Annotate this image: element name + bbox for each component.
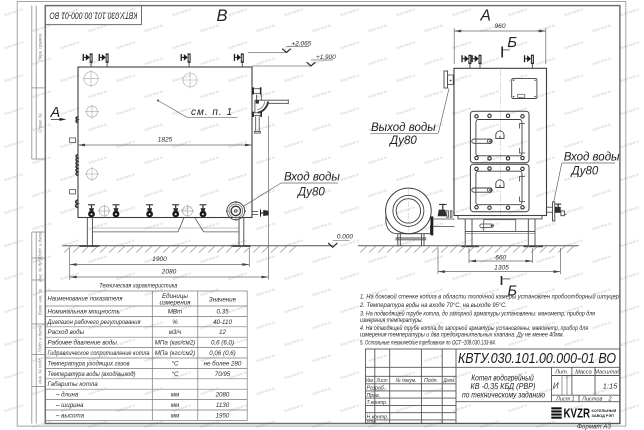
svg-text:ЗАВОД РЭП: ЗАВОД РЭП [592,414,615,418]
svg-text:1900: 1900 [152,256,167,263]
svg-text:Вход воды: Вход воды [284,172,340,184]
svg-text:А: А [480,7,491,24]
svg-text:Габариты котла: Габариты котла [48,381,99,388]
svg-text:Наименование показателя: Наименование показателя [48,296,124,303]
svg-text:МПа (кгс/см2): МПа (кгс/см2) [155,340,195,347]
svg-text:%: % [172,319,178,326]
svg-text:Гидравлическое сопротивление к: Гидравлическое сопротивление котла [48,350,150,357]
svg-text:2080: 2080 [215,392,230,399]
svg-text:0.000: 0.000 [337,234,353,241]
svg-text:– длина: – длина [55,392,79,399]
svg-text:Пров.: Пров. [367,393,381,399]
svg-text:Подп. и дата: Подп. и дата [38,231,43,259]
svg-text:мм: мм [171,402,180,409]
svg-text:КВТУ.030.101.00.000-01 ВО: КВТУ.030.101.00.000-01 ВО [458,350,616,367]
svg-text:№ докум.: № докум. [396,378,417,384]
svg-text:+1.900: +1.900 [316,54,336,61]
svg-text:Номинальная мощность: Номинальная мощность [48,308,120,315]
svg-text:Рабочее давление воды: Рабочее давление воды [48,340,118,347]
svg-text:Вход воды: Вход воды [564,151,620,163]
svg-text:Формат А3: Формат А3 [577,424,611,430]
svg-text:°С: °С [172,371,179,378]
svg-text:Подп. и дата: Подп. и дата [38,325,43,353]
svg-text:Котел водогрейный: Котел водогрейный [471,373,534,382]
svg-text:Ду80: Ду80 [296,187,325,199]
svg-text:Листов: Листов [581,397,602,403]
svg-text:960: 960 [494,23,505,30]
svg-text:Б: Б [507,34,517,51]
svg-text:2. Температура воды на входе: 2. Температура воды на входе 70°С, на вы… [359,301,507,309]
svg-text:Лист: Лист [555,397,571,403]
svg-text:Ду80: Ду80 [388,135,417,147]
svg-text:измерения температуры.: измерения температуры. [360,317,423,324]
svg-text:измерения температуры и два пр: измерения температуры и два предохраните… [360,331,564,339]
svg-text:1. На боковой стенке котла в: 1. На боковой стенке котла в области топ… [360,293,619,301]
svg-text:Взам. инв. №: Взам. инв. № [38,288,43,315]
svg-text:Масштаб: Масштаб [594,370,621,376]
svg-text:Температура уходящих газов: Температура уходящих газов [48,360,131,367]
svg-text:660: 660 [495,255,506,262]
svg-text:1: 1 [572,397,575,403]
svg-text:– ширина: – ширина [55,402,84,409]
svg-text:м3/ч: м3/ч [169,329,182,336]
svg-text:не более 280: не более 280 [204,360,242,367]
svg-text:измерения: измерения [160,299,192,306]
svg-text:5. Остальные технические треб: 5. Остальные технические требования по О… [360,338,496,346]
svg-text:Масса: Масса [575,370,592,376]
svg-text:Справ. №: Справ. № [38,113,43,133]
svg-text:40-110: 40-110 [213,319,232,326]
svg-text:КВТУ.030.101.00.000-01 ВО: КВТУ.030.101.00.000-01 ВО [49,10,137,21]
svg-text:Инв. № подл.: Инв. № подл. [38,357,43,384]
svg-text:70/95: 70/95 [215,371,231,378]
svg-text:Лит.: Лит. [554,370,568,376]
svg-text:0,35: 0,35 [216,308,229,315]
svg-text:°С: °С [172,360,179,367]
svg-text:Лист: Лист [376,378,388,384]
svg-text:Дата: Дата [443,378,455,384]
svg-text:В: В [217,7,228,25]
svg-text:мм: мм [171,392,180,399]
svg-text:12: 12 [219,329,226,336]
svg-text:0,6 (6,0): 0,6 (6,0) [211,340,234,347]
svg-text:Т.контр.: Т.контр. [367,400,388,406]
svg-text:МВт: МВт [168,308,182,315]
svg-text:Температура воды (вход/выход): Температура воды (вход/выход) [48,371,136,378]
svg-text:KVZR: KVZR [564,407,591,421]
svg-text:И: И [553,382,559,391]
svg-text:– высота: – высота [55,412,85,419]
svg-text:Значение: Значение [209,296,237,303]
svg-text:0,06 (0,6): 0,06 (0,6) [209,350,235,357]
svg-text:А: А [50,105,61,121]
svg-text:1:15: 1:15 [603,381,618,390]
svg-text:Расход воды: Расход воды [48,329,85,336]
svg-text:Перв. примен.: Перв. примен. [38,33,43,62]
svg-text:+2.065: +2.065 [292,41,312,48]
svg-text:по техническому заданию: по техническому заданию [462,391,545,400]
svg-text:Диапазон рабочего регулировани: Диапазон рабочего регулирования [47,319,142,326]
svg-text:1825: 1825 [158,137,173,144]
svg-text:Подп.: Подп. [424,378,438,384]
svg-text:1950: 1950 [216,412,230,419]
svg-text:Разраб.: Разраб. [367,386,386,392]
svg-text:Ду80: Ду80 [570,166,599,178]
svg-text:МПа (кгс/см2): МПа (кгс/см2) [155,350,195,357]
svg-text:Выход воды: Выход воды [371,122,436,134]
svg-text:1305: 1305 [494,264,509,271]
svg-text:мм: мм [171,412,180,419]
svg-text:1130: 1130 [216,402,230,409]
svg-text:см. п. 1: см. п. 1 [191,107,233,118]
svg-text:2080: 2080 [161,269,177,276]
svg-text:КОТЕЛЬНЫЙ: КОТЕЛЬНЫЙ [592,409,617,413]
svg-text:Техническая характеристика: Техническая характеристика [99,283,177,290]
svg-text:Изм.: Изм. [366,378,374,384]
svg-text:Инв. № дубл.: Инв. № дубл. [38,256,43,282]
svg-text:Утв.: Утв. [367,419,377,424]
